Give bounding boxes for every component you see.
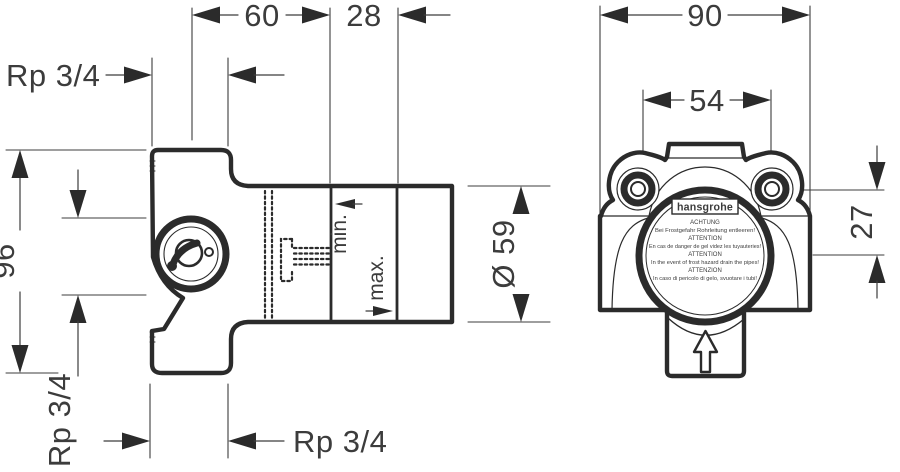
dim-28-label: 28 — [346, 0, 381, 33]
arrow-up-icon — [12, 150, 29, 178]
warning-line: ATTENTION — [688, 252, 722, 258]
rp34-side-label: Rp 3/4 — [42, 373, 77, 467]
arrow-left-icon — [192, 7, 220, 24]
arrow-right-icon — [124, 67, 152, 84]
arrow-right-icon — [743, 92, 771, 109]
arrow-down-icon — [12, 345, 29, 373]
side-port-boss — [156, 219, 226, 289]
dim-96-label: 96 — [0, 243, 21, 278]
dim-54: 54 — [643, 83, 771, 118]
side-view: 60 28 Rp 3/4 96 — [0, 0, 550, 467]
dim-diameter-59: Ø 59 — [486, 186, 530, 322]
warning-line: ATTENZION — [688, 268, 722, 274]
technical-drawing-page: 60 28 Rp 3/4 96 — [0, 0, 900, 472]
arrow-up-icon — [70, 295, 87, 323]
arrow-right-icon — [122, 433, 150, 450]
arrow-left-icon — [643, 92, 671, 109]
svg-text:max.: max. — [365, 255, 388, 301]
valve-dimension-drawing: 60 28 Rp 3/4 96 — [0, 0, 900, 472]
arrow-up-icon — [513, 186, 530, 214]
arrow-left-icon — [600, 7, 628, 24]
rp34-top-label: Rp 3/4 — [6, 58, 100, 93]
arrow-down-icon — [513, 294, 530, 322]
warning-line: In caso di pericolo di gelo, svuotare i … — [653, 276, 757, 282]
dim-27: 27 — [844, 146, 886, 298]
warning-line: In the event of frost hazard drain the p… — [651, 260, 759, 266]
dim-60: 60 — [192, 0, 330, 33]
warning-line: ATTENTION — [688, 236, 722, 242]
arrow-right-icon — [782, 7, 810, 24]
warning-line: En cas de danger de gel videz les tuyaut… — [649, 244, 761, 250]
arrow-right-icon — [302, 7, 330, 24]
dim-rp34-top: Rp 3/4 — [6, 58, 284, 93]
arrow-left-icon — [398, 7, 426, 24]
rp34-bottom-label: Rp 3/4 — [293, 424, 387, 459]
hansgrohe-logo: hansgrohe — [672, 199, 738, 214]
arrow-left-icon — [228, 433, 256, 450]
dim-27-label: 27 — [844, 204, 879, 239]
arrow-down-icon — [869, 162, 886, 190]
arrow-down-icon — [70, 190, 87, 218]
dim-rp34-side: Rp 3/4 — [42, 170, 87, 467]
dim-60-label: 60 — [244, 0, 279, 33]
dim-54-label: 54 — [689, 83, 724, 118]
screw-hole-left — [617, 168, 659, 210]
front-view: 90 54 27 — [600, 0, 886, 376]
arrow-up-icon — [869, 255, 886, 283]
warning-line: ACHTUNG — [690, 220, 720, 226]
hansgrohe-wordmark: hansgrohe — [677, 202, 733, 214]
dim-96: 96 — [0, 150, 29, 373]
arrow-left-icon — [228, 67, 256, 84]
screw-hole-right — [751, 168, 793, 210]
dim-rp34-bottom: Rp 3/4 — [104, 424, 387, 459]
warning-line: Bei Frostgefahr Rohrleitung entleeren! — [655, 228, 755, 234]
dim-90-label: 90 — [687, 0, 722, 33]
dim-90: 90 — [600, 0, 810, 33]
svg-text:min.: min. — [328, 214, 351, 254]
dim-59-label: Ø 59 — [486, 219, 521, 288]
